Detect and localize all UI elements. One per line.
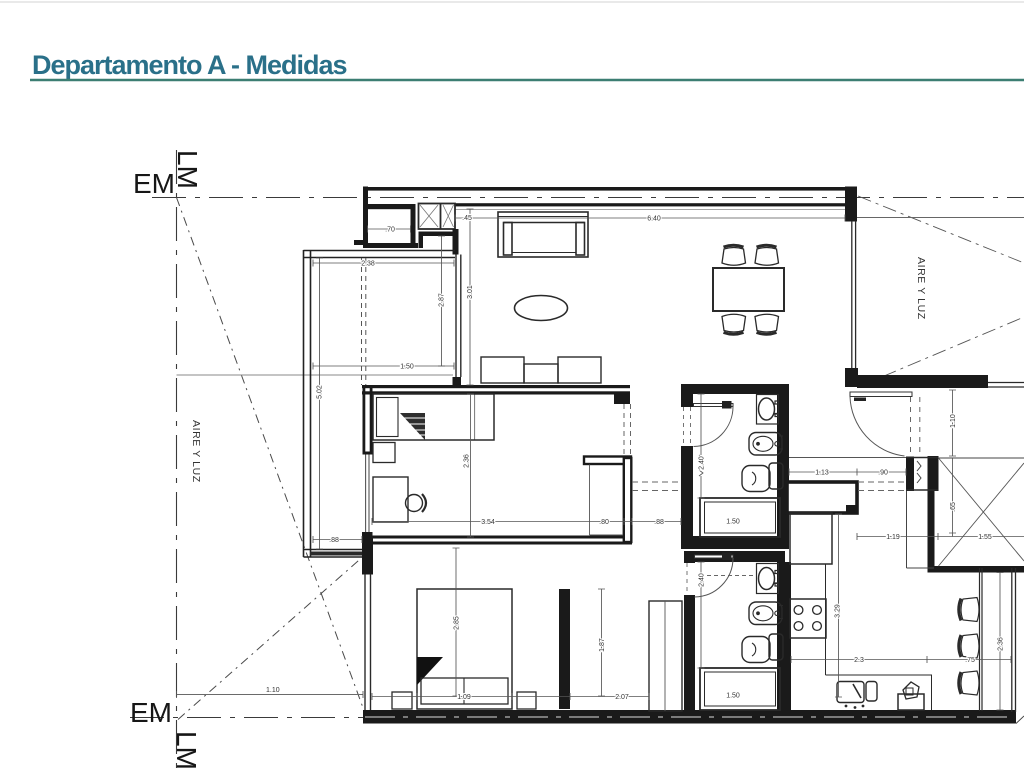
svg-text:1.55: 1.55 (978, 534, 992, 541)
svg-text:.88: .88 (329, 537, 339, 544)
svg-text:2.40: 2.40 (699, 573, 706, 587)
svg-text:2.38: 2.38 (361, 260, 375, 267)
svg-text:2.85: 2.85 (454, 616, 461, 630)
svg-text:2.07: 2.07 (615, 694, 629, 701)
svg-text:.45: .45 (462, 215, 472, 222)
svg-text:AIRE Y LUZ: AIRE Y LUZ (190, 420, 202, 483)
svg-text:5.02: 5.02 (317, 385, 324, 399)
svg-text:EM: EM (130, 697, 172, 728)
svg-text:2.36: 2.36 (464, 454, 471, 468)
svg-text:2.3: 2.3 (854, 657, 864, 664)
svg-text:1.50: 1.50 (726, 518, 740, 525)
svg-text:1.09: 1.09 (457, 694, 471, 701)
svg-text:.80: .80 (599, 519, 609, 526)
svg-text:3.01: 3.01 (467, 285, 474, 299)
svg-text:Departamento A - Medidas: Departamento A - Medidas (32, 50, 347, 80)
svg-text:3.29: 3.29 (835, 604, 842, 618)
svg-text:LM: LM (172, 150, 203, 189)
svg-text:1.10: 1.10 (266, 687, 280, 694)
svg-text:2.36: 2.36 (998, 637, 1005, 651)
svg-text:EM: EM (133, 168, 175, 199)
svg-text:1.19: 1.19 (886, 534, 900, 541)
svg-text:.75: .75 (965, 657, 975, 664)
svg-text:.65: .65 (950, 502, 957, 512)
svg-text:AIRE Y LUZ: AIRE Y LUZ (915, 257, 927, 320)
svg-text:1.10: 1.10 (950, 414, 957, 428)
svg-text:1.87: 1.87 (599, 638, 606, 652)
svg-text:.90: .90 (878, 469, 888, 476)
svg-text:3.54: 3.54 (481, 519, 495, 526)
svg-text:2.87: 2.87 (439, 293, 446, 307)
svg-text:2.40: 2.40 (699, 456, 706, 470)
svg-text:.88: .88 (654, 519, 664, 526)
svg-text:.70: .70 (385, 226, 395, 233)
svg-text:1.13: 1.13 (815, 469, 829, 476)
svg-text:6.40: 6.40 (647, 215, 661, 222)
svg-text:1.50: 1.50 (726, 692, 740, 699)
svg-text:LM: LM (171, 731, 202, 768)
svg-text:1.50: 1.50 (400, 363, 414, 370)
